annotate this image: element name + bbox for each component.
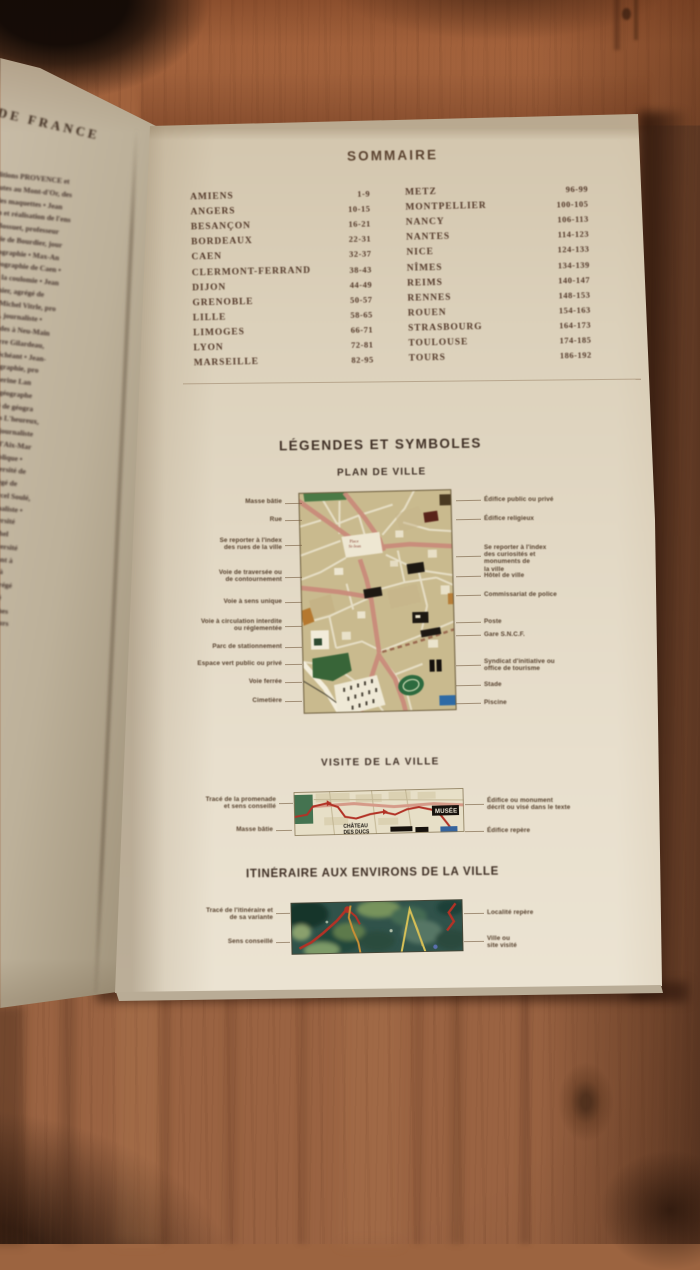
svg-text:St-Jean: St-Jean	[349, 543, 362, 548]
svg-text:DES DUCS: DES DUCS	[343, 829, 370, 836]
